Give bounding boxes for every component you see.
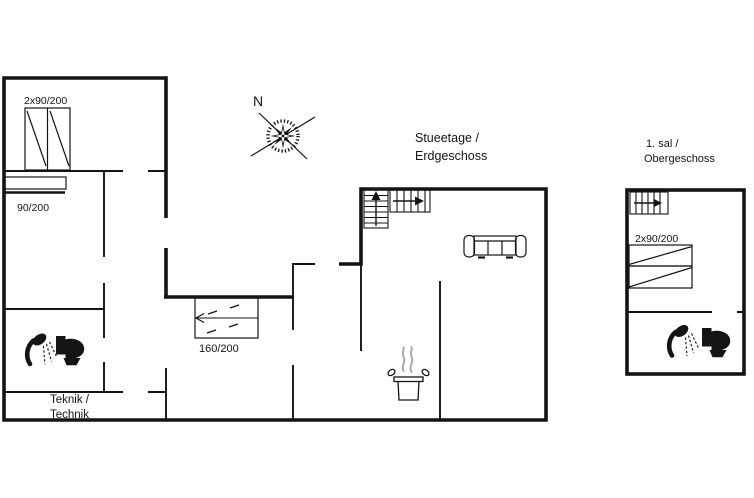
stairs-upper-icon	[630, 192, 668, 214]
stairs-ground-icon	[364, 190, 430, 228]
sofa-icon	[464, 236, 526, 258]
technik-label-line1: Teknik /	[50, 394, 90, 406]
bed-90-label: 90/200	[17, 202, 49, 214]
upper-toilet-icon	[702, 328, 730, 357]
upper-floor-title-line2: Obergeschoss	[644, 153, 715, 165]
cooking-pot-icon	[387, 368, 430, 400]
toilet-icon	[56, 336, 84, 365]
upper-floor-plan: 2x90/200 1. sal / Obergeschoss	[626, 138, 744, 374]
upper-bed-label: 2x90/200	[635, 233, 678, 245]
upper-floor-title-line1: 1. sal /	[646, 138, 679, 150]
ground-floor-title-line1: Stueetage /	[415, 131, 479, 145]
upper-shower-icon	[669, 323, 699, 356]
north-label: N	[253, 93, 263, 109]
compass-rose-icon: N	[251, 93, 315, 159]
single-bed-90-icon	[4, 177, 66, 193]
upper-double-bed-icon	[629, 245, 692, 288]
floorplan-page: 2x90/200 90/200 160/200	[0, 0, 754, 498]
bed-2x90-label: 2x90/200	[24, 95, 67, 107]
double-bed-160-icon	[195, 298, 258, 338]
bed-160-label: 160/200	[199, 343, 239, 355]
double-bed-2x90-icon	[25, 108, 70, 170]
technik-label-line2: Technik	[50, 409, 89, 421]
shower-icon	[27, 331, 57, 364]
floorplan-drawing: 2x90/200 90/200 160/200	[0, 0, 754, 498]
steam-icon	[403, 347, 413, 372]
ground-floor-title-line2: Erdgeschoss	[415, 149, 487, 163]
